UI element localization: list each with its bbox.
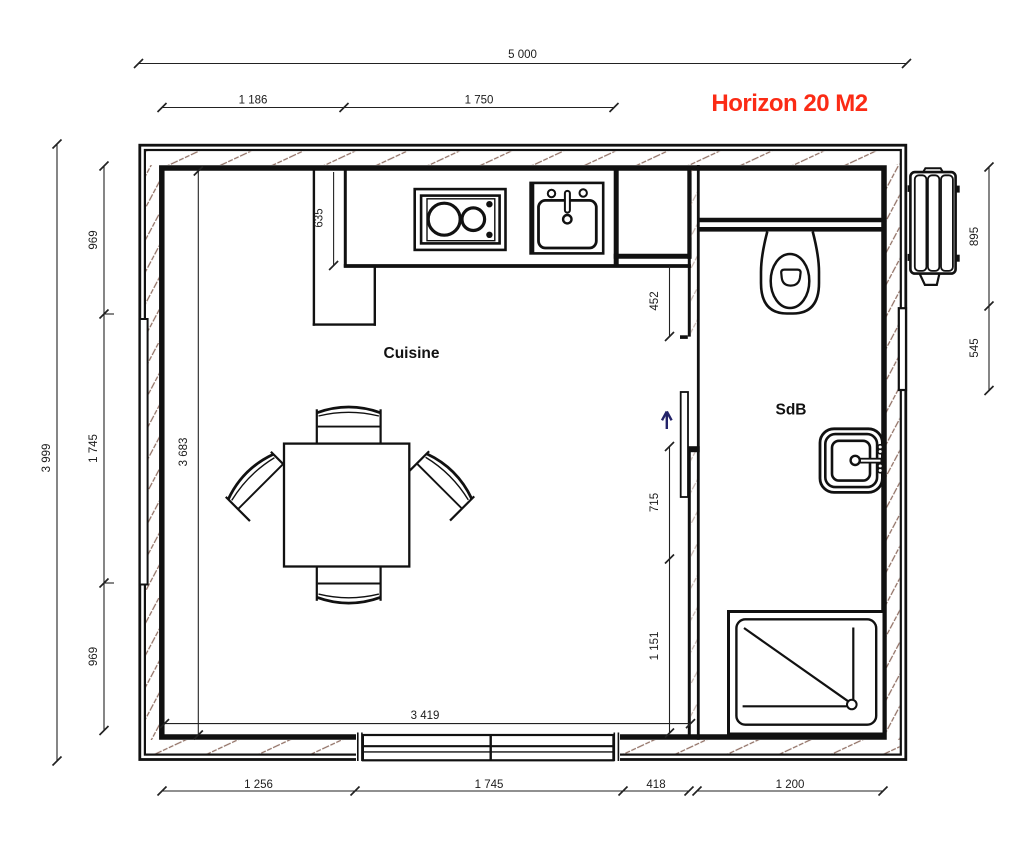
svg-text:3 999: 3 999 bbox=[41, 444, 53, 473]
svg-text:969: 969 bbox=[88, 647, 100, 666]
svg-text:3 419: 3 419 bbox=[411, 710, 440, 722]
svg-text:1 200: 1 200 bbox=[776, 779, 805, 791]
svg-text:5 000: 5 000 bbox=[508, 49, 537, 61]
svg-text:1 745: 1 745 bbox=[475, 779, 504, 791]
svg-text:1 750: 1 750 bbox=[465, 95, 494, 107]
svg-text:Horizon 20 M2: Horizon 20 M2 bbox=[711, 90, 867, 117]
svg-text:1 256: 1 256 bbox=[244, 779, 273, 791]
svg-text:1 745: 1 745 bbox=[88, 434, 100, 463]
svg-text:895: 895 bbox=[969, 227, 981, 246]
svg-text:Cuisine: Cuisine bbox=[384, 345, 440, 362]
svg-text:418: 418 bbox=[646, 779, 665, 791]
svg-text:3 683: 3 683 bbox=[178, 438, 190, 467]
svg-text:635: 635 bbox=[314, 208, 326, 227]
svg-text:1 151: 1 151 bbox=[649, 632, 661, 661]
svg-text:452: 452 bbox=[649, 291, 661, 310]
svg-text:715: 715 bbox=[649, 493, 661, 512]
svg-text:545: 545 bbox=[969, 338, 981, 357]
svg-text:1 186: 1 186 bbox=[239, 95, 268, 107]
svg-text:969: 969 bbox=[88, 230, 100, 249]
svg-text:SdB: SdB bbox=[776, 402, 807, 419]
